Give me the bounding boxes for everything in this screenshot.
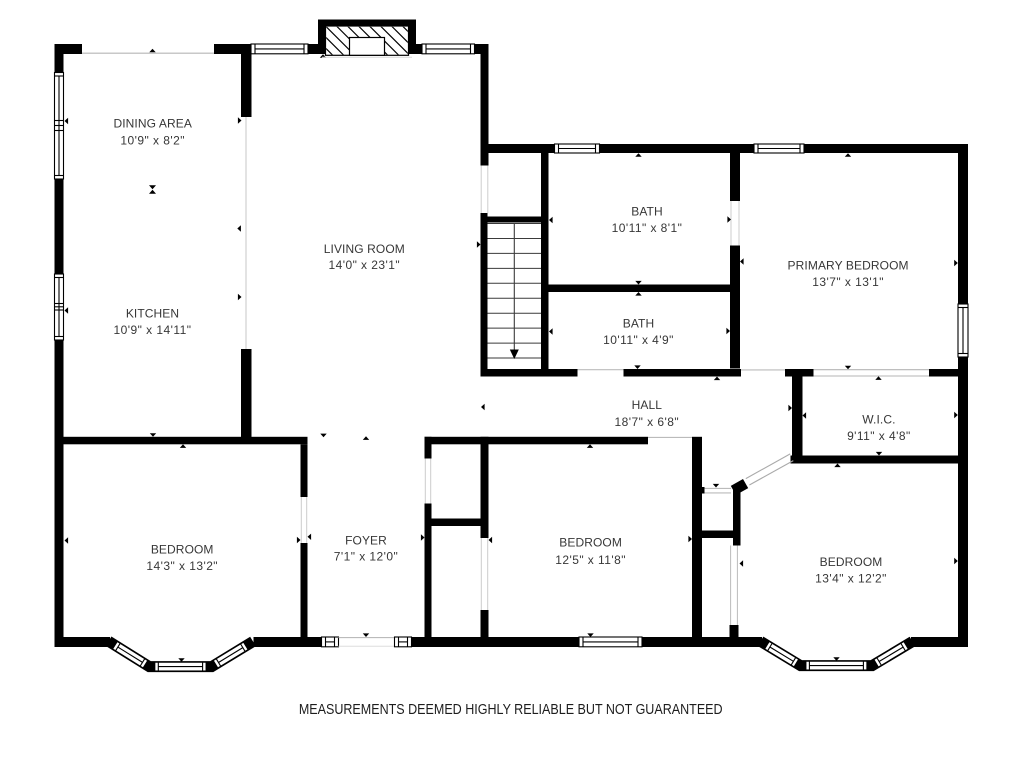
svg-text:PRIMARY BEDROOM: PRIMARY BEDROOM <box>788 258 909 272</box>
svg-text:KITCHEN: KITCHEN <box>126 306 179 320</box>
svg-text:12'5" x 11'8": 12'5" x 11'8" <box>555 553 626 567</box>
svg-text:13'4" x 12'2": 13'4" x 12'2" <box>815 572 887 586</box>
svg-text:W.I.C.: W.I.C. <box>862 412 895 426</box>
svg-text:7'1" x 12'0": 7'1" x 12'0" <box>334 550 399 564</box>
svg-text:10'11" x 4'9": 10'11" x 4'9" <box>603 333 674 347</box>
svg-text:BEDROOM: BEDROOM <box>820 555 883 569</box>
svg-text:MEASUREMENTS DEEMED HIGHLY REL: MEASUREMENTS DEEMED HIGHLY RELIABLE BUT … <box>299 700 723 717</box>
svg-text:BATH: BATH <box>631 205 663 219</box>
svg-text:18'7" x 6'8": 18'7" x 6'8" <box>615 415 680 429</box>
svg-text:BEDROOM: BEDROOM <box>151 543 214 557</box>
svg-text:BATH: BATH <box>623 316 655 330</box>
svg-text:BEDROOM: BEDROOM <box>559 536 622 550</box>
svg-text:HALL: HALL <box>632 398 663 412</box>
svg-text:10'11" x 8'1": 10'11" x 8'1" <box>612 221 683 235</box>
svg-text:14'3" x 13'2": 14'3" x 13'2" <box>146 559 218 573</box>
svg-text:10'9" x 8'2": 10'9" x 8'2" <box>120 133 185 147</box>
svg-text:14'0" x 23'1": 14'0" x 23'1" <box>328 258 400 272</box>
svg-text:LIVING ROOM: LIVING ROOM <box>324 242 405 256</box>
svg-text:13'7" x 13'1": 13'7" x 13'1" <box>812 275 884 289</box>
svg-text:DINING AREA: DINING AREA <box>113 117 191 131</box>
svg-text:9'11" x 4'8": 9'11" x 4'8" <box>847 429 911 443</box>
svg-text:FOYER: FOYER <box>345 534 387 548</box>
svg-text:10'9" x 14'11": 10'9" x 14'11" <box>114 323 192 337</box>
